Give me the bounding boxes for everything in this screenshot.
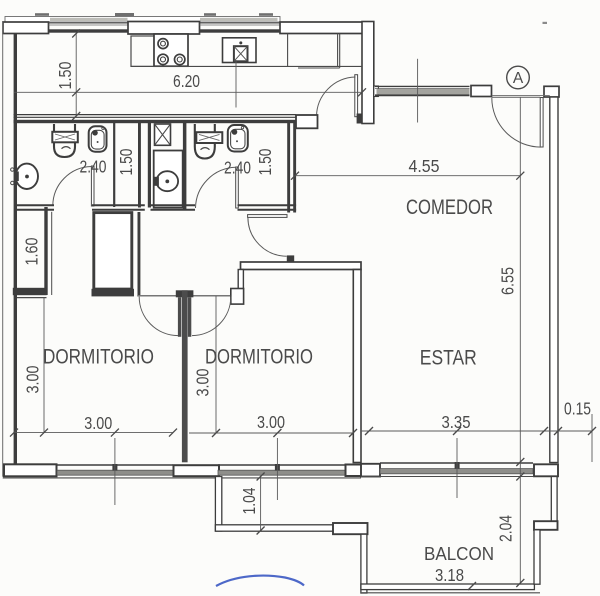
svg-text:1.50: 1.50 [55,61,75,89]
svg-text:3.00: 3.00 [84,413,112,433]
svg-text:1.50: 1.50 [116,148,136,175]
svg-text:2.40: 2.40 [224,158,251,178]
svg-text:DORMITORIO: DORMITORIO [43,345,154,369]
svg-text:4.55: 4.55 [409,156,440,176]
svg-text:6.55: 6.55 [498,267,518,295]
svg-text:3.18: 3.18 [435,565,464,585]
svg-text:COMEDOR: COMEDOR [406,195,493,219]
svg-text:3.00: 3.00 [193,368,213,396]
svg-text:0.15: 0.15 [564,399,591,419]
svg-text:2.40: 2.40 [80,157,107,177]
svg-text:1.50: 1.50 [255,148,275,175]
svg-text:2.04: 2.04 [496,515,516,542]
svg-text:1.60: 1.60 [22,237,42,265]
svg-text:BALCON: BALCON [424,543,494,564]
svg-text:6.20: 6.20 [173,71,200,91]
svg-text:DORMITORIO: DORMITORIO [205,345,313,369]
svg-text:1.04: 1.04 [239,487,259,514]
svg-text:3.00: 3.00 [257,412,285,432]
svg-text:ESTAR: ESTAR [420,346,477,370]
svg-text:3.00: 3.00 [23,365,43,393]
svg-text:A: A [513,70,524,87]
svg-text:3.35: 3.35 [442,412,471,432]
